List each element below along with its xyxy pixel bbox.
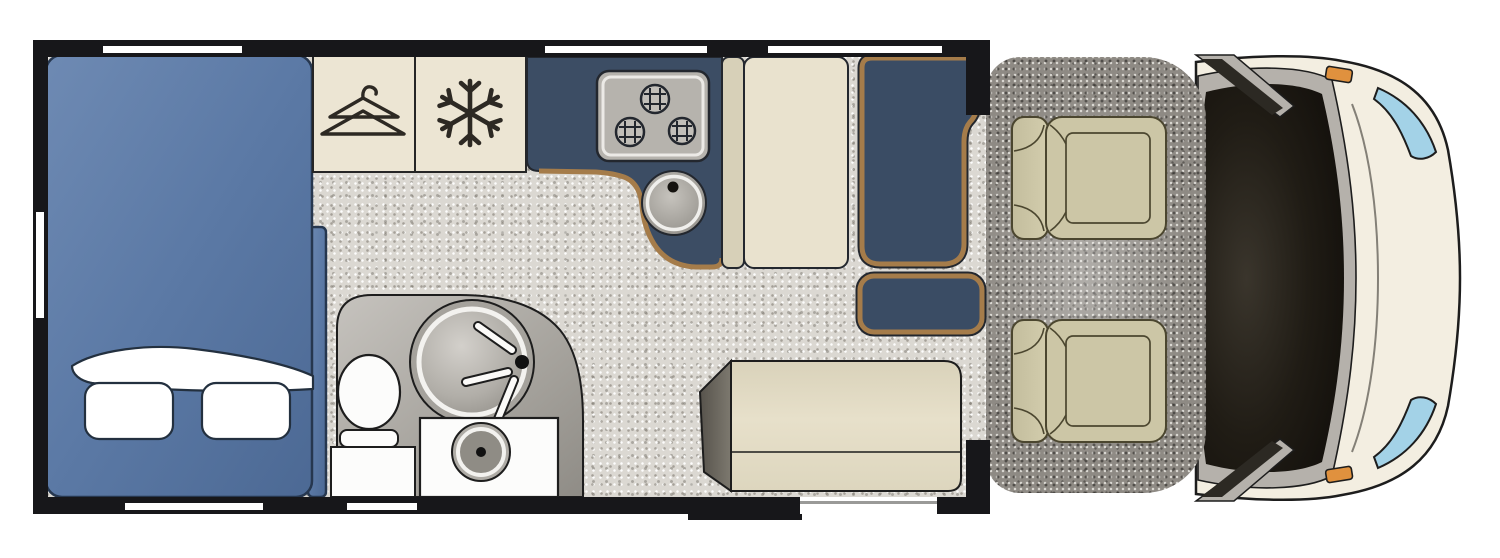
wall-stub-top-right [966, 40, 990, 115]
motorhome-floorplan [0, 0, 1500, 558]
window-bottom-2 [347, 503, 417, 510]
window-top-1 [103, 46, 242, 53]
burner-icon [641, 85, 669, 113]
driver-seat [1012, 117, 1166, 239]
furniture-layer [0, 0, 1500, 558]
washbasin [420, 418, 558, 497]
refrigerator [415, 55, 526, 172]
burner-icon [669, 118, 695, 144]
sofa-wedge [700, 361, 731, 491]
double-bed [46, 55, 326, 497]
dinette-side-seat [860, 276, 982, 332]
wardrobe [313, 55, 415, 172]
burner-icon [616, 118, 644, 146]
wall-stub-bottom-right [966, 440, 990, 514]
shower-drain-dot [515, 355, 529, 369]
entry-step [688, 506, 802, 520]
pillow [202, 383, 290, 439]
pillow [85, 383, 173, 439]
entry-door-opening [800, 497, 937, 514]
kitchen-sink [642, 171, 706, 235]
dinette-bench [722, 57, 848, 268]
shower [410, 300, 534, 424]
window-bottom-1 [125, 503, 263, 510]
kitchen-counter [527, 57, 722, 267]
washroom-module [331, 295, 583, 497]
window-rear [36, 212, 44, 318]
tap-dot [668, 182, 679, 193]
window-top-3 [768, 46, 942, 53]
door-threshold-line [800, 501, 937, 504]
dinette-table [862, 58, 978, 264]
sofa [700, 361, 961, 491]
window-top-2 [545, 46, 707, 53]
basin-tap-dot [476, 447, 486, 457]
passenger-seat [1012, 320, 1166, 442]
hob-3-burner [597, 71, 709, 161]
